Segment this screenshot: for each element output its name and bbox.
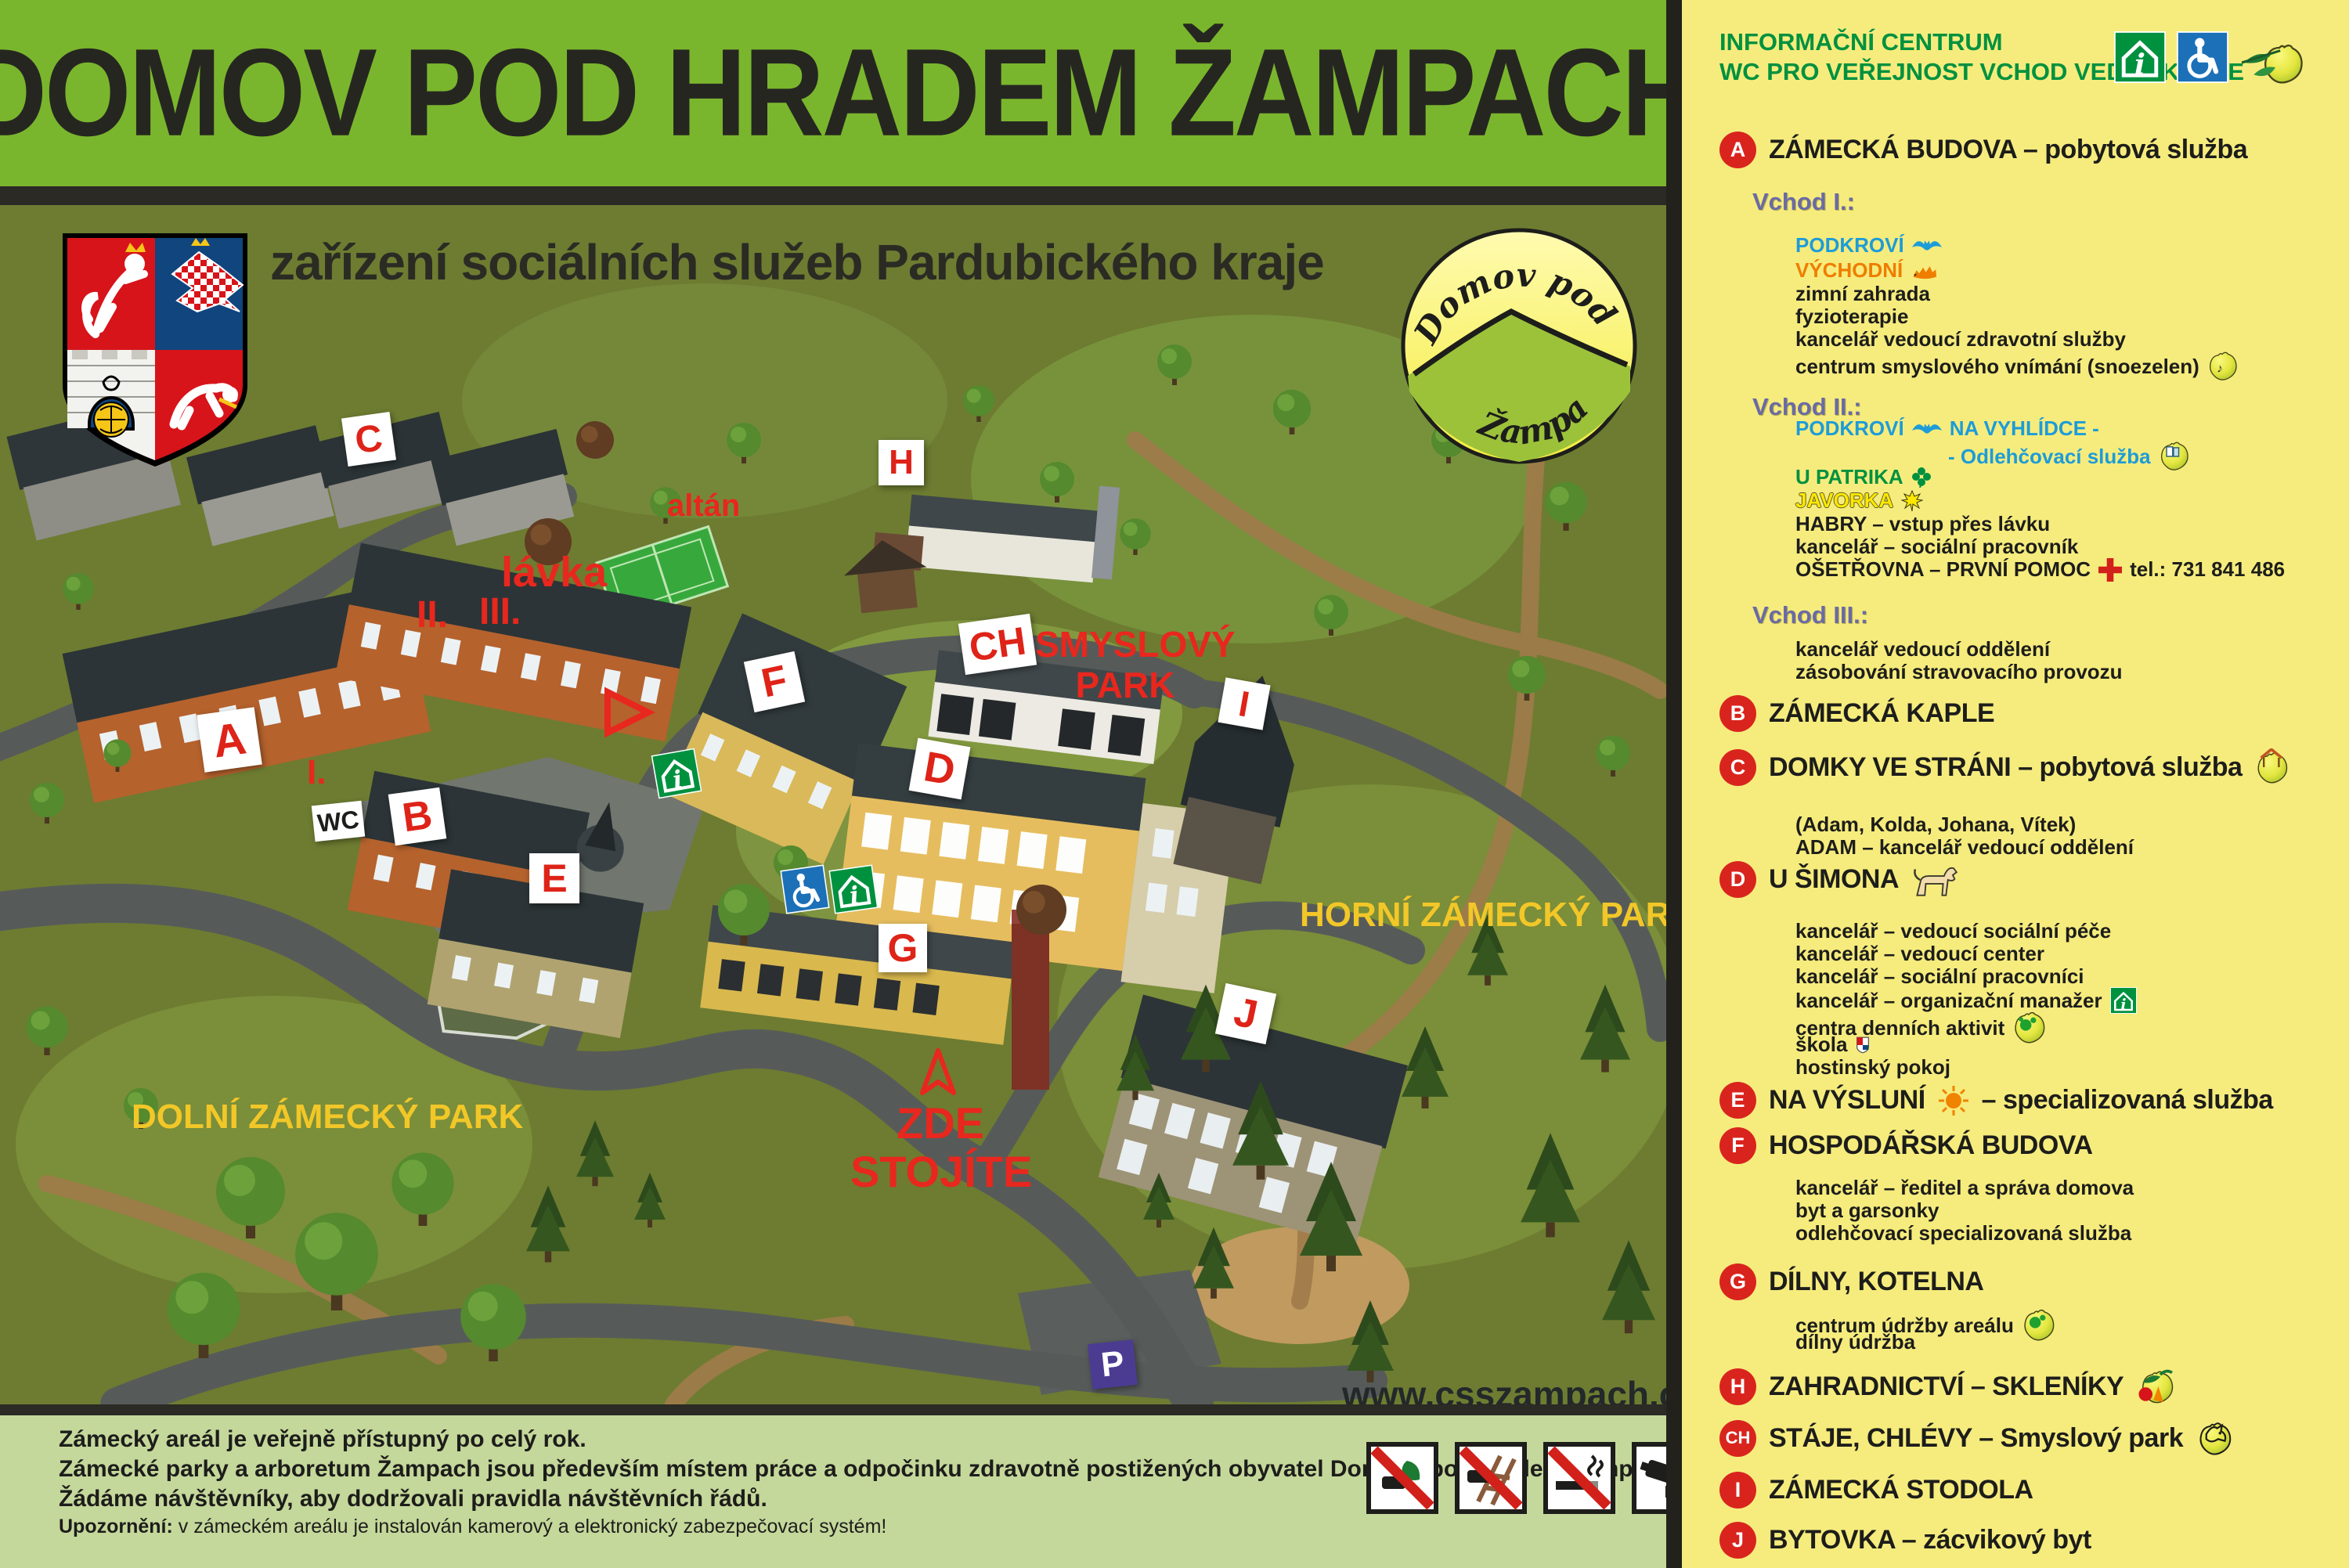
map-info-icon-d — [828, 864, 878, 914]
legend-badge-ch: CH — [1719, 1420, 1756, 1457]
zde-line1: ZDE — [850, 1099, 1030, 1148]
legend-line-v1-4: centrum smyslového vnímání (snoezelen) ♪ — [1795, 350, 2239, 383]
podkrovi-label: PODKROVÍ — [1795, 233, 1904, 258]
legend-entry-c: C DOMKY VE STRÁNI – pobytová služba — [1719, 748, 2290, 786]
javorka-label: JAVORKA — [1795, 488, 1893, 513]
legend-title-f: HOSPODÁŘSKÁ BUDOVA — [1769, 1130, 2093, 1161]
legend-badge-d: D — [1719, 861, 1756, 898]
legend-line-v3-2: zásobování stravovacího provozu — [1795, 660, 2123, 684]
map-label-roman-1: I. — [307, 753, 326, 792]
map-label-d: D — [909, 738, 971, 800]
pear-house-icon — [2254, 748, 2290, 786]
podkrovi2-label: PODKROVÍ — [1795, 416, 1904, 441]
legend-line-javorka: JAVORKA — [1795, 488, 1923, 513]
hedgehog-icon — [1911, 262, 1937, 279]
legend-line-odlehcovaci: - Odlehčovací služba — [1948, 440, 2190, 473]
map-label-smyslovy-park: SMYSLOVÝ PARK — [1035, 624, 1215, 705]
zde-line2: STOJÍTE — [850, 1148, 1030, 1196]
pardubice-region-coat-of-arms — [56, 229, 254, 471]
pear-splash-icon — [2012, 1010, 2047, 1046]
legend-badge-j: J — [1719, 1522, 1756, 1559]
title-underline — [0, 186, 1666, 205]
footer-note-4: Upozornění: v zámeckém areálu je instalo… — [59, 1516, 886, 1538]
legend-line-u-patrika: U PATRIKA — [1795, 465, 1932, 489]
map-label-roman-3: III. — [479, 590, 521, 633]
u-patrika-label: U PATRIKA — [1795, 465, 1903, 489]
odlehcovaci-label: - Odlehčovací služba — [1948, 445, 2151, 469]
footer-divider — [0, 1404, 1666, 1415]
legend-entry-g: G DÍLNY, KOTELNA — [1719, 1263, 1983, 1300]
legend-line-habry: HABRY – vstup přes lávku — [1795, 512, 2050, 536]
legend-line-g-2: dílny údržba — [1795, 1330, 1915, 1354]
map-wheelchair-icon — [780, 864, 829, 914]
legend-line-d-2: kancelář – vedoucí center — [1795, 942, 2044, 966]
legend-line-podkrovi-1: PODKROVÍ — [1795, 233, 1942, 258]
no-smoking-icon — [1543, 1442, 1615, 1514]
map-label-roman-2: II. — [417, 593, 448, 636]
smyslovy-line1: SMYSLOVÝ — [1035, 624, 1215, 665]
panel-header-icons — [2114, 31, 2311, 94]
smyslovy-line2: PARK — [1035, 665, 1215, 705]
map-label-h: H — [879, 440, 924, 485]
first-aid-phone: tel.: 731 841 486 — [2130, 557, 2285, 582]
legend-entry-j: J BYTOVKA – zácvikový byt — [1719, 1522, 2091, 1559]
panel-header-line1: INFORMAČNÍ CENTRUM — [1719, 28, 2003, 56]
footer-warning-text: v zámeckém areálu je instalován kamerový… — [179, 1516, 887, 1537]
map-label-altan: altán — [667, 488, 740, 524]
bat-icon — [1912, 237, 1942, 254]
legend-vchod-3: Vchod III.: — [1752, 601, 1868, 629]
sun-icon — [1938, 1085, 1969, 1116]
legend-line-d-3: kancelář – sociální pracovníci — [1795, 964, 2084, 989]
info-centre-icon — [2114, 31, 2166, 83]
legend-entry-f: F HOSPODÁŘSKÁ BUDOVA — [1719, 1127, 2093, 1164]
legend-vchod-1: Vchod I.: — [1752, 188, 1855, 216]
map-label-you-are-here: ZDE STOJÍTE — [850, 1099, 1030, 1196]
footer-warning-label: Upozornění: — [59, 1516, 173, 1537]
svg-text:♪: ♪ — [2217, 362, 2223, 376]
campus-map: zařízení sociálních služeb Pardubického … — [0, 205, 1666, 1404]
legend-title-c: DOMKY VE STRÁNI – pobytová služba — [1769, 752, 2242, 783]
legend-line-c-2: ADAM – kancelář vedoucí oddělení — [1795, 835, 2134, 860]
bat-icon — [1912, 420, 1942, 438]
legend-badge-i: I — [1719, 1472, 1756, 1509]
legend-badge-b: B — [1719, 695, 1756, 732]
map-label-f: F — [744, 651, 805, 712]
legend-line-c-1: (Adam, Kolda, Johana, Vítek) — [1795, 813, 2076, 837]
map-label-horni-park: HORNÍ ZÁMECKÝ PARK — [1300, 896, 1695, 935]
page-subtitle: zařízení sociálních služeb Pardubického … — [270, 233, 1324, 291]
legend-title-a: ZÁMECKÁ BUDOVA – pobytová služba — [1769, 135, 2247, 165]
manazer-label: kancelář – organizační manažer — [1795, 989, 2102, 1013]
map-label-c: C — [341, 412, 396, 467]
legend-line-f-1: kancelář – ředitel a správa domova — [1795, 1176, 2134, 1200]
legend-panel: INFORMAČNÍ CENTRUM WC PRO VEŘEJNOST VCHO… — [1682, 0, 2349, 1568]
legend-line-v3-1: kancelář vedoucí oddělení — [1795, 637, 2050, 661]
legend-line-v1-2: fyzioterapie — [1795, 305, 1909, 329]
pear-vegetables-icon — [2136, 1367, 2177, 1406]
legend-title-g: DÍLNY, KOTELNA — [1769, 1267, 1983, 1297]
map-label-ch: CH — [958, 614, 1037, 675]
footer-note-1: Zámecký areál je veřejně přístupný po ce… — [59, 1426, 586, 1453]
snoezelen-label: centrum smyslového vnímání (snoezelen) — [1795, 355, 2199, 379]
vychodni-label: VÝCHODNÍ — [1795, 258, 1903, 283]
map-label-j: J — [1215, 983, 1276, 1044]
wheelchair-access-icon — [2177, 31, 2228, 83]
na-vyhlidce-label: NA VYHLÍDCE - — [1950, 416, 2099, 441]
map-label-dolni-park: DOLNÍ ZÁMECKÝ PARK — [132, 1098, 523, 1137]
legend-badge-h: H — [1719, 1368, 1756, 1405]
map-label-a: A — [197, 707, 262, 773]
school-crest-icon — [1856, 1036, 1870, 1054]
footer-note-3: Žádáme návštěvníky, aby dodržovali pravi… — [59, 1486, 767, 1512]
map-label-parking: P — [1088, 1339, 1138, 1390]
maple-leaf-icon — [1901, 490, 1923, 512]
footer: Zámecký areál je veřejně přístupný po ce… — [0, 1415, 1666, 1568]
clover-icon — [1911, 467, 1932, 488]
legend-line-d-7: hostinský pokoj — [1795, 1055, 1950, 1080]
map-label-b: B — [388, 788, 447, 846]
map-label-g: G — [879, 924, 927, 972]
page-title: DOMOV POD HRADEM ŽAMPACH — [0, 21, 1700, 165]
info-house-small-icon — [2110, 987, 2137, 1014]
legend-title-j: BYTOVKA – zácvikový byt — [1769, 1525, 2091, 1555]
legend-title-h: ZAHRADNICTVÍ – SKLENÍKY — [1769, 1372, 2123, 1402]
legend-entry-d: D U ŠIMONA — [1719, 861, 1961, 898]
legend-title-b: ZÁMECKÁ KAPLE — [1769, 698, 1994, 729]
chimney — [1012, 910, 1049, 1090]
pear-horse-icon — [2196, 1418, 2235, 1458]
no-climbing-icon — [1455, 1442, 1527, 1514]
pear-leaf-logo-icon — [2239, 31, 2311, 94]
legend-badge-c: C — [1719, 749, 1756, 786]
legend-line-v2-2: kancelář – sociální pracovník — [1795, 535, 2078, 559]
legend-entry-a: A ZÁMECKÁ BUDOVA – pobytová služba — [1719, 132, 2247, 168]
pear-music-icon: ♪ — [2207, 350, 2239, 383]
legend-entry-h: H ZAHRADNICTVÍ – SKLENÍKY — [1719, 1367, 2177, 1406]
map-label-lavka: lávka — [501, 548, 607, 597]
legend-line-d-1: kancelář – vedoucí sociální péče — [1795, 919, 2111, 943]
no-picking-plants-icon — [1366, 1442, 1438, 1514]
legend-line-podkrovi-2: PODKROVÍ NA VYHLÍDCE - — [1795, 416, 2099, 441]
legend-line-osetrovna: OŠETŘOVNA – PRVNÍ POMOC tel.: 731 841 48… — [1795, 557, 2285, 582]
legend-title-e2: – specializovaná služba — [1982, 1085, 2273, 1116]
map-label-e: E — [529, 853, 579, 903]
legend-badge-f: F — [1719, 1127, 1756, 1164]
legend-line-vychodni: VÝCHODNÍ — [1795, 258, 1937, 283]
you-are-here-arrow-icon — [918, 1047, 958, 1096]
information-board: DOMOV POD HRADEM ŽAMPACH — [0, 0, 2349, 1568]
title-bar: DOMOV POD HRADEM ŽAMPACH — [0, 0, 1666, 186]
legend-line-v1-1: zimní zahrada — [1795, 282, 1930, 306]
legend-line-f-3: odlehčovací specializovaná služba — [1795, 1221, 2131, 1245]
panel-divider — [1666, 0, 1682, 1568]
legend-title-ch: STÁJE, CHLÉVY – Smyslový park — [1769, 1423, 2183, 1454]
legend-entry-e: E NA VÝSLUNÍ – specializovaná služba — [1719, 1082, 2273, 1119]
legend-entry-i: I ZÁMECKÁ STODOLA — [1719, 1472, 2033, 1509]
domov-logo: Domov pod hradem Žampach — [1400, 227, 1638, 465]
legend-title-e1: NA VÝSLUNÍ — [1769, 1085, 1925, 1116]
legend-entry-ch: CH STÁJE, CHLÉVY – Smyslový park — [1719, 1418, 2235, 1458]
first-aid-cross-icon — [2098, 558, 2122, 582]
map-info-icon-castle — [651, 748, 702, 799]
map-label-wc: WC — [312, 801, 365, 842]
legend-entry-b: B ZÁMECKÁ KAPLE — [1719, 695, 1994, 732]
legend-title-i: ZÁMECKÁ STODOLA — [1769, 1475, 2033, 1505]
legend-badge-e: E — [1719, 1082, 1756, 1119]
legend-line-d-6: škola — [1795, 1033, 1870, 1057]
pear-splash-icon — [2022, 1307, 2056, 1343]
map-label-i: I — [1218, 677, 1270, 730]
legend-badge-g: G — [1719, 1263, 1756, 1300]
legend-line-f-2: byt a garsonky — [1795, 1199, 1939, 1223]
legend-badge-a: A — [1719, 132, 1756, 168]
dog-icon — [1911, 862, 1961, 898]
legend-line-v1-3: kancelář vedoucí zdravotní služby — [1795, 327, 2126, 351]
pear-window-icon — [2159, 440, 2190, 473]
skola-label: škola — [1795, 1033, 1848, 1057]
osetrovna-label: OŠETŘOVNA – PRVNÍ POMOC — [1795, 557, 2091, 582]
legend-title-d: U ŠIMONA — [1769, 864, 1899, 895]
